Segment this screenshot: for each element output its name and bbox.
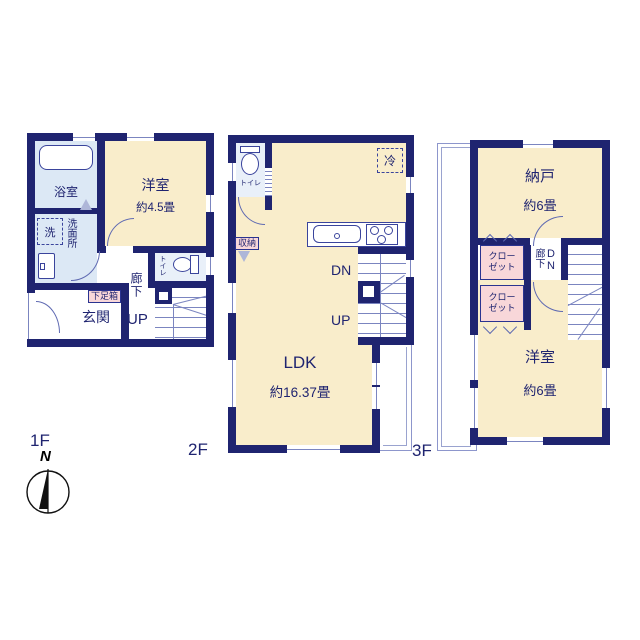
hallway-label: 廊下 <box>531 248 546 280</box>
stair-line <box>173 295 208 305</box>
room-storeroom <box>478 148 602 238</box>
wall <box>228 135 414 143</box>
ldk-label: LDK <box>270 353 330 373</box>
storeroom-label: 納戸 <box>478 165 602 186</box>
washroom-label: 洗面所 <box>63 218 78 278</box>
stair-line <box>568 286 604 306</box>
hatch-strip <box>265 168 272 196</box>
window <box>406 177 414 193</box>
up-label: UP <box>331 312 350 328</box>
compass-needle-icon <box>24 462 72 518</box>
stair-line <box>578 308 601 340</box>
window <box>406 260 414 277</box>
bath-label: 浴室 <box>35 183 97 200</box>
western-room-label: 洋室 <box>478 346 602 367</box>
stair-line <box>173 304 210 317</box>
window <box>523 140 553 148</box>
stair-post-hole <box>363 286 374 297</box>
toilet-label: トイレ <box>157 255 167 281</box>
stair-post-hole <box>159 292 168 300</box>
western-room-label: 洋室 <box>105 175 206 195</box>
closet-label: クローゼット <box>485 251 519 273</box>
storage-tag: 収納 <box>235 237 259 250</box>
wall <box>27 133 35 293</box>
window <box>206 257 214 275</box>
balcony-inner-line <box>441 147 471 447</box>
shoe-cabinet-tag: 下足箱 <box>88 290 121 303</box>
stairs-3f <box>568 245 602 340</box>
balcony-floor <box>380 345 406 445</box>
wall <box>358 337 414 345</box>
wall <box>206 133 214 347</box>
window <box>372 363 380 385</box>
storeroom-size-label: 約6畳 <box>478 195 602 214</box>
floor-plan-1f: 洗 浴室 洋室 約4.5畳 洗面所 トイレ 下足箱 玄関 廊下 UP <box>27 133 214 347</box>
dn-label: DN <box>331 262 351 278</box>
window <box>228 283 236 313</box>
floorplan-page: 洗 浴室 洋室 約4.5畳 洗面所 トイレ 下足箱 玄関 廊下 UP <box>0 0 640 640</box>
compass: N <box>24 448 84 528</box>
window <box>507 437 543 445</box>
dn-label: DN <box>545 248 557 280</box>
window <box>206 195 214 212</box>
washer-box: 洗 <box>37 218 63 245</box>
fridge-label: 冷 <box>384 152 396 169</box>
western-room-size-label: 約4.5畳 <box>105 199 206 215</box>
toilet-tank-icon <box>190 255 199 274</box>
window <box>602 368 610 408</box>
up-label: UP <box>127 311 148 328</box>
closet-label: クローゼット <box>485 292 519 314</box>
window <box>287 445 340 453</box>
sink-drain <box>334 233 340 239</box>
closet: クローゼット <box>480 245 524 280</box>
toilet-icon <box>241 153 259 175</box>
porch-edge-line <box>28 293 29 339</box>
hallway-label: 廊下 <box>128 272 145 306</box>
folding-door-icon <box>80 199 92 210</box>
bathtub-icon <box>39 145 93 170</box>
stair-line <box>173 304 174 339</box>
stove-burner <box>377 235 386 244</box>
window <box>73 133 95 141</box>
floor-title-3f: 3F <box>412 441 432 461</box>
fridge-box: 冷 <box>377 148 403 173</box>
stove-burner <box>370 226 379 235</box>
window <box>470 335 478 380</box>
wall <box>524 245 531 330</box>
stove-burner <box>384 226 393 235</box>
ldk-size-label: 約16.37畳 <box>255 381 345 401</box>
floor-plan-3f: クローゼット クローゼット 納戸 約6畳 廊下 DN 洋室 約6畳 <box>435 140 612 455</box>
washbasin-knob <box>40 263 45 270</box>
door-arc <box>36 301 60 333</box>
wall <box>27 133 214 141</box>
wall <box>133 246 214 253</box>
floor-title-2f: 2F <box>188 440 208 460</box>
wall <box>148 281 214 288</box>
toilet-tank-icon <box>240 146 260 153</box>
western-room-size-label: 約6畳 <box>478 380 602 399</box>
wall <box>27 283 129 290</box>
washer-label: 洗 <box>45 224 56 240</box>
stair-line <box>380 302 408 319</box>
window <box>372 387 380 409</box>
wall <box>406 135 414 345</box>
window <box>228 163 236 181</box>
entrance-label: 玄関 <box>74 307 118 327</box>
window <box>127 133 154 141</box>
folding-door-icon <box>238 251 250 262</box>
floor-plan-2f: 冷 トイレ 収納 DN UP LDK 約16.37畳 <box>228 135 414 453</box>
toilet-label: トイレ <box>236 178 265 188</box>
closet: クローゼット <box>480 285 524 322</box>
stair-line <box>380 254 381 337</box>
stair-line <box>380 275 405 293</box>
wall <box>97 141 105 251</box>
window <box>470 388 478 428</box>
window <box>228 360 236 407</box>
